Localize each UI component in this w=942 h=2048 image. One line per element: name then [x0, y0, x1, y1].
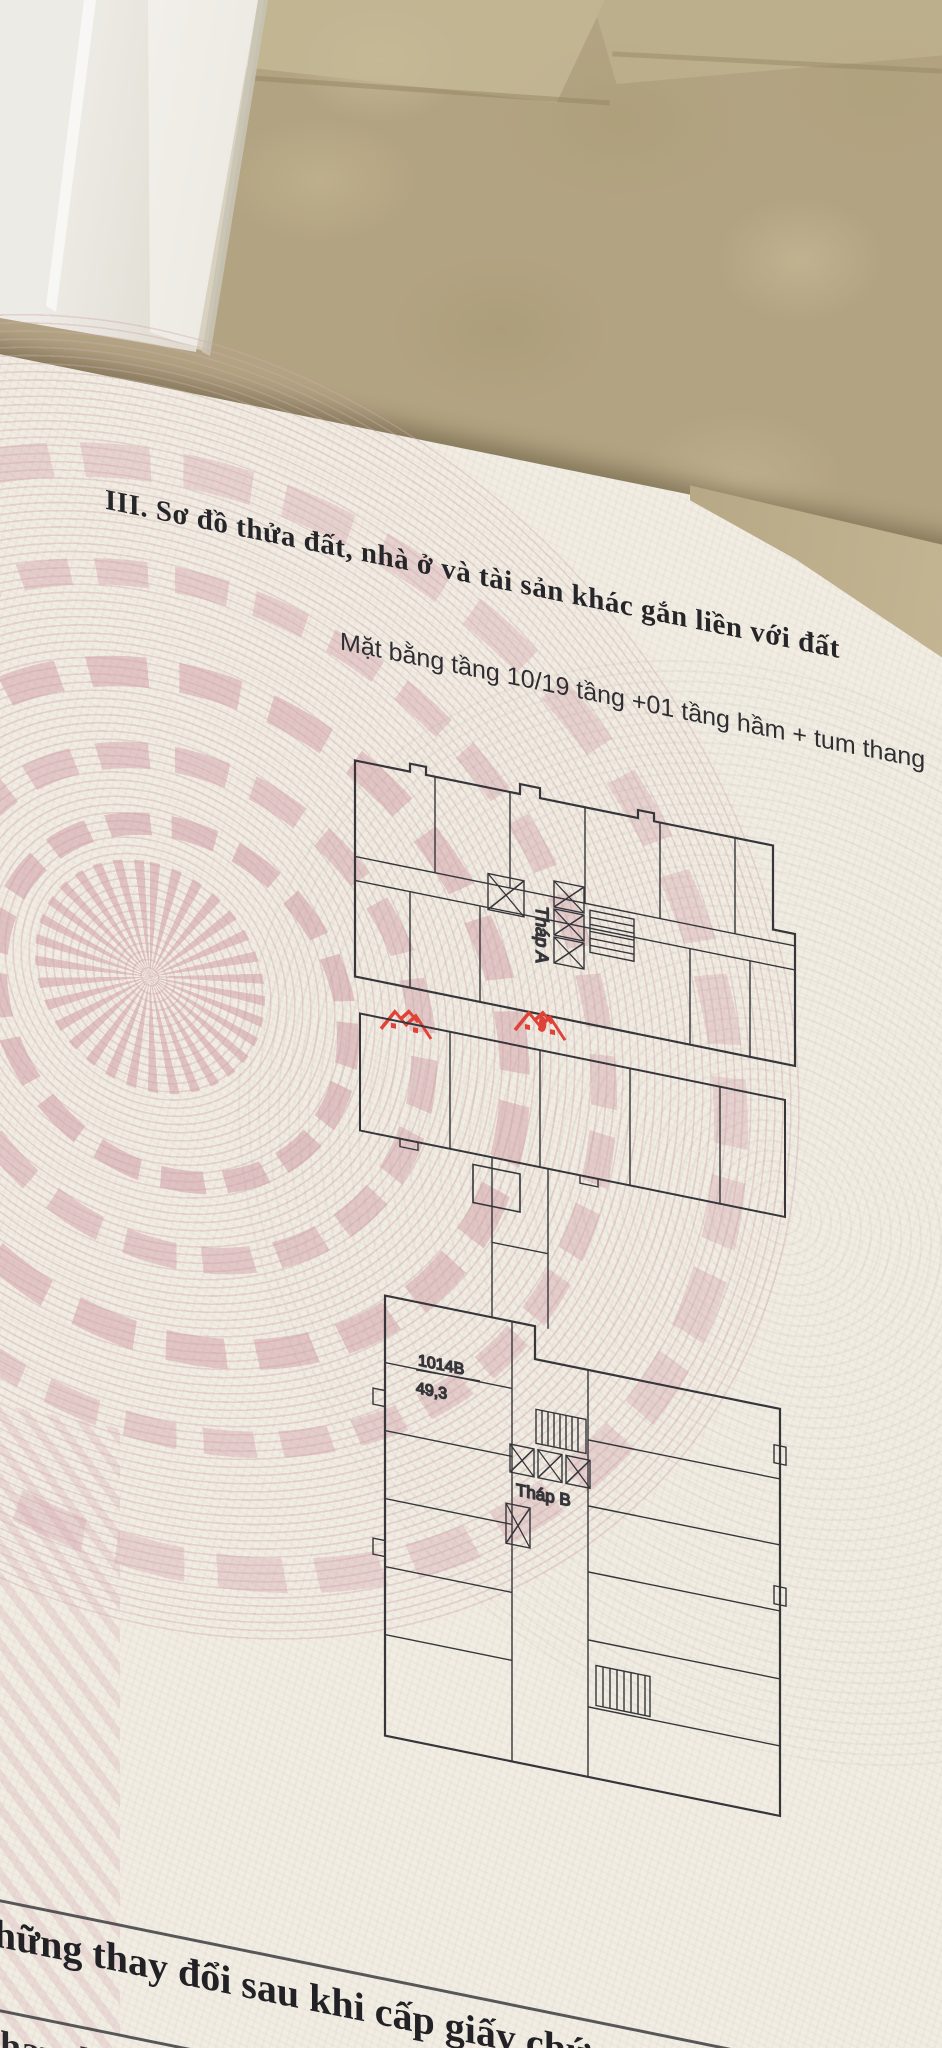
tower-b-label: Tháp B	[516, 1479, 571, 1510]
staircase-icon	[536, 1409, 586, 1453]
elevator-icon	[488, 874, 524, 917]
tower-b-block: 1014B 49,3 Tháp B	[373, 1293, 786, 1817]
floor-plan-drawing: Tháp A	[340, 741, 800, 1835]
elevator-icon	[554, 881, 584, 969]
mid-room-band	[360, 1013, 785, 1224]
photo-canvas: III. Sơ đồ thửa đất, nhà ở và tài sản kh…	[0, 0, 942, 2048]
certificate-document: III. Sơ đồ thửa đất, nhà ở và tài sản kh…	[0, 340, 942, 2048]
tower-a-label: Tháp A	[532, 904, 552, 966]
staircase-icon	[596, 1665, 650, 1716]
connector-corridor	[473, 1153, 548, 1328]
red-roof-watermark-icon	[515, 1007, 565, 1040]
unit-area-label: 49,3	[416, 1379, 447, 1403]
elevator-icon	[506, 1503, 530, 1548]
